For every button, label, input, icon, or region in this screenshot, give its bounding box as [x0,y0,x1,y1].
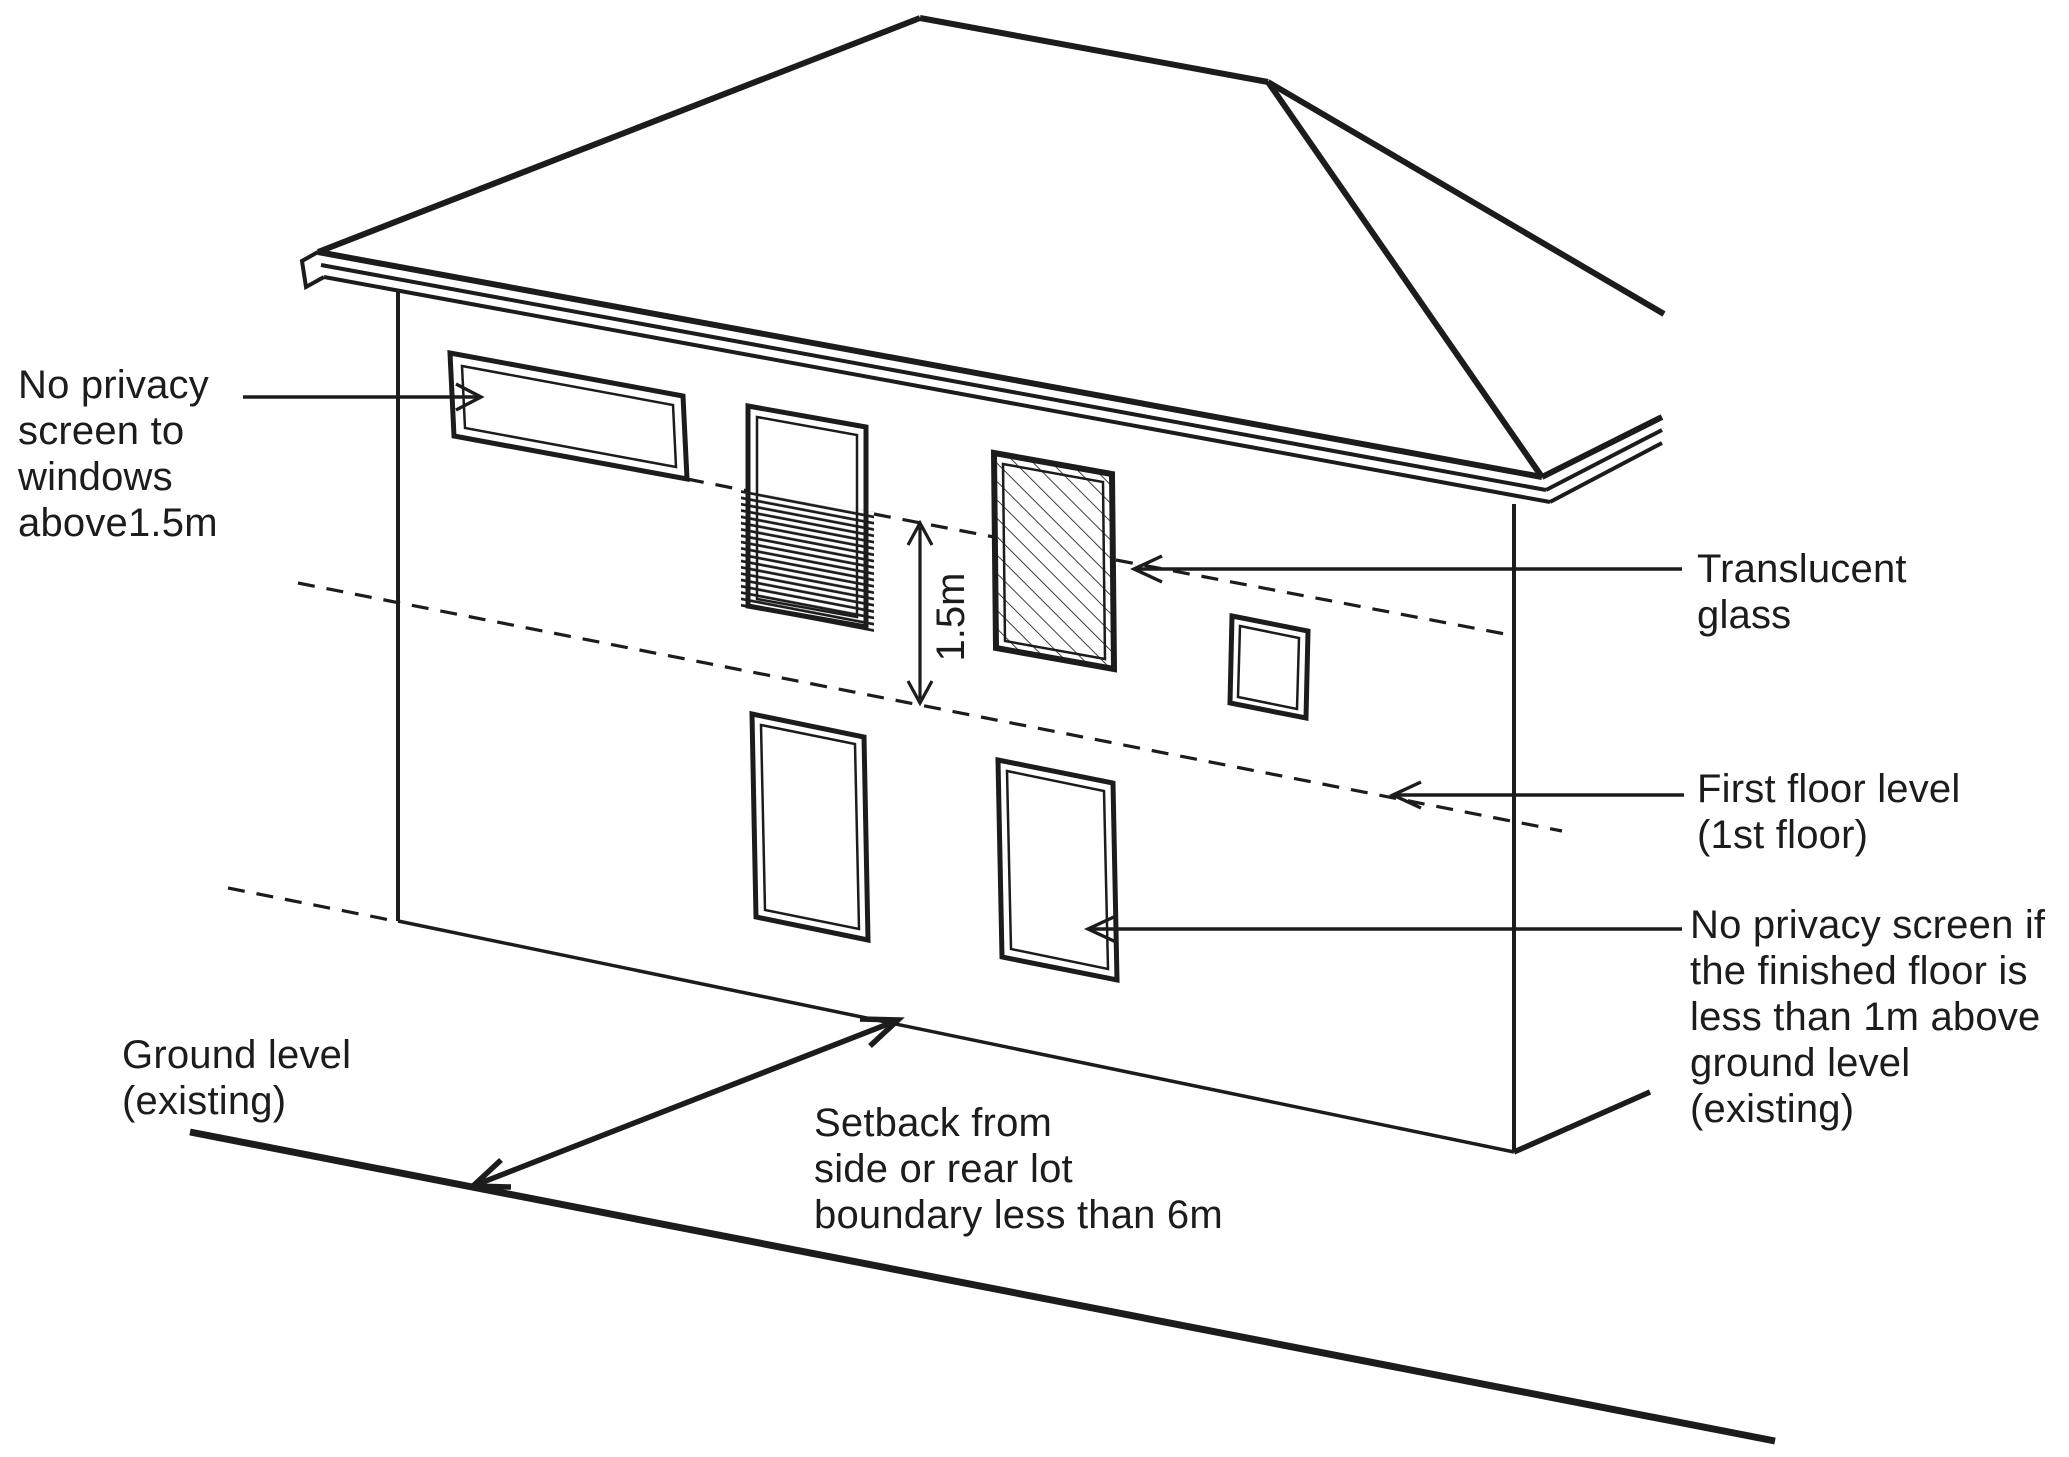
louvre-blades [741,487,874,634]
fascia-left-endcap [302,252,324,287]
fascia-front-bottom [324,277,1550,502]
fascia-right-mid [1546,430,1662,490]
diagram-canvas: No privacy screen to windows above1.5m T… [0,0,2069,1457]
label-ground-level: Ground level (existing) [122,1032,351,1124]
leader-no-screen-if [1088,916,1682,942]
window-translucent-glass [994,453,1114,669]
label-no-privacy-screen-if: No privacy screen if the finished floor … [1690,902,2069,1132]
leader-no-screen-above [243,384,481,410]
leaders [243,384,1684,942]
window-ground-right [998,760,1117,980]
roof-hip-left [318,18,920,252]
label-translucent-glass: Translucent glass [1697,546,1907,638]
roof-hip-rear-right [1268,82,1664,314]
house-line-drawing [0,0,2069,1457]
roof-ridge [920,18,1268,82]
wall-bottom-right-side [1514,1092,1650,1152]
label-no-privacy-screen-above: No privacy screen to windows above1.5m [18,362,218,546]
label-setback: Setback from side or rear lot boundary l… [814,1100,1223,1238]
roof-hip-front-right [1268,82,1542,477]
fascia-right-bottom [1550,443,1662,502]
window-high-wide [450,353,687,479]
leader-first-floor-level [1393,782,1684,808]
ground-floor-level-stub [228,888,395,921]
window-ground-left [752,714,868,940]
windows [450,353,1308,980]
label-first-floor-level: First floor level (1st floor) [1697,766,1960,858]
roof [302,18,1664,502]
label-dimension-1-5m: 1.5m [931,573,971,662]
fascia-right-top [1542,417,1662,477]
level-lines [228,479,1562,921]
window-small [1230,616,1308,718]
window-louvred-screen [741,406,874,634]
fascia-front-mid [321,265,1546,490]
walls [398,290,1650,1152]
